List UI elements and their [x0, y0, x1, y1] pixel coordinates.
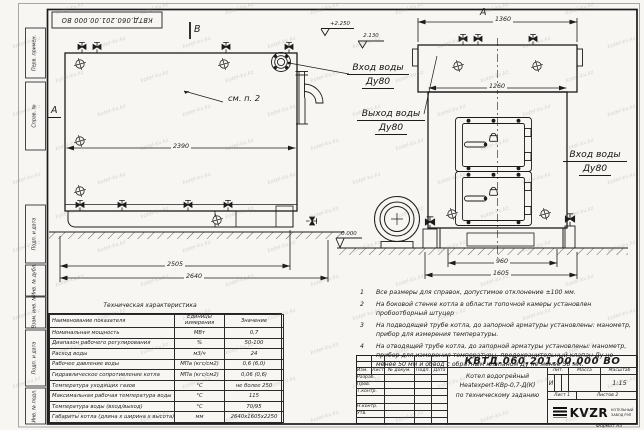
furnace-door-lower [456, 172, 532, 226]
blower-fan [375, 197, 420, 249]
list-item: 1Все размеры для справок, допустимое отк… [360, 289, 634, 298]
sheet-number: Лист 1 [548, 392, 577, 400]
section-marker-a-side: А [48, 106, 61, 118]
elev-2250: +2.250 [330, 22, 350, 27]
table-row: Рабочее давление водыМПа (кгс/см2)0,6 (6… [50, 359, 284, 370]
table-row: Гидравлическое сопротивление котлаМПа (к… [50, 370, 284, 381]
water-outlet-label: Выход воды Ду80 [357, 108, 425, 135]
lit-label: Лит. [548, 368, 569, 375]
tech-header-name: Наименование показателя [50, 315, 175, 328]
elev-2130: 2.130 [363, 34, 378, 39]
dim-1605: 1605 [491, 271, 511, 277]
tb-row-nkontr: Н.контр. [357, 404, 385, 411]
section-marker-b: B [194, 25, 201, 35]
frame-col-label-sprav-no: Справ. № [33, 104, 38, 127]
top-inverted-stamp: КВТД.060.201.00.000 ВО [52, 12, 162, 28]
tech-table-title: Техническая характеристика [103, 303, 196, 309]
tb-row-prov: Пров. [357, 382, 385, 389]
water-inlet-right-label: Вход воды Ду80 [563, 149, 627, 176]
scale-label: Масштаб [601, 368, 638, 375]
kvzr-logo-icon [553, 407, 567, 418]
table-row: Номинальная мощностьМВт0,7 [50, 328, 284, 339]
furnace-door-upper [456, 118, 532, 172]
table-row: Расход водым3/ч24 [50, 349, 284, 360]
kvzr-logo-caption: КОТЕЛЬНЫЙ ЗАВОД РЭП [611, 408, 633, 417]
table-row: Температура воды (вход/выход)°С70/95 [50, 401, 284, 412]
table-row: Температура уходящих газов°Сне более 250 [50, 380, 284, 391]
water-inlet-label: Вход воды Ду80 [347, 62, 409, 89]
tb-col-list: Лист [372, 368, 385, 375]
table-row: Габариты котла (длина х ширина х высота)… [50, 412, 284, 423]
tb-col-izm: Изм. [357, 368, 372, 375]
dim-2640: 2640 [184, 274, 204, 280]
elev-0000: 0.000 [341, 232, 356, 237]
frame-col-label-vzam-inv: Взам. инв. № [33, 296, 38, 329]
list-item: 2На боковой стенке котла в области топоч… [360, 301, 634, 319]
scale-value: 1:15 [601, 375, 638, 392]
inlet-flange [272, 53, 291, 72]
drawing-sheet: КВТД.060.201.00.000 ВО Перв. примен. Спр… [0, 0, 644, 430]
tech-header-value: Значение [225, 315, 284, 328]
frame-col-label-inv-dubl: Инв. № дубл. [33, 264, 38, 297]
table-row: Максимальная рабочая температура воды°С1… [50, 391, 284, 402]
see-note-label: см. п. 2 [228, 94, 260, 102]
frame-col-label-podp-data-2: Подп. и дата [33, 342, 38, 375]
dim-1360: 1360 [493, 17, 513, 23]
format-note: Формат А3 [596, 425, 622, 430]
product-name: Котел водогрейный Heatexpert-КВр-0,7-Д(К… [448, 368, 548, 425]
outlet-pipe [296, 72, 324, 125]
view-marker-a-front: А [480, 8, 487, 18]
table-row: Диапазон рабочего регулирования%50-100 [50, 338, 284, 349]
tb-row-tkontr: Т.контр. [357, 389, 385, 396]
frame-col-label-inv-podl: Инв. № подл. [33, 389, 38, 422]
tb-col-data: Дата [432, 368, 448, 375]
doc-number: КВТД.060.201.00.000 ВО [448, 356, 638, 368]
dim-2505: 2505 [165, 262, 185, 268]
frame-col-label-perv-primen: Перв. примен. [33, 35, 38, 71]
lit-value: И [548, 375, 555, 392]
kvzr-logo-text: KVZR [570, 406, 609, 420]
dim-960: 960 [494, 259, 510, 265]
dim-1260: 1260 [487, 84, 507, 90]
mass-value [569, 375, 601, 392]
tech-table: Наименование показателя Единицы измерени… [48, 313, 282, 424]
mass-label: Масса [569, 368, 601, 375]
frame-col-label-podp-data-1: Подп. и дата [33, 218, 38, 251]
tb-row-razrab: Разраб. [357, 375, 385, 382]
list-item: 3На подводящей трубе котла, до запорной … [360, 322, 634, 340]
side-view [49, 42, 344, 282]
sheets-total: Листов 2 [577, 392, 638, 400]
tech-header-units: Единицы измерения [175, 315, 225, 328]
company-logo: KVZR КОТЕЛЬНЫЙ ЗАВОД РЭП [548, 400, 638, 425]
tb-col-podp: Подп. [415, 368, 432, 375]
tb-col-doc: № докум. [385, 368, 415, 375]
tb-row-utv: Утв. [357, 411, 385, 418]
dim-2390: 2390 [171, 144, 191, 150]
title-block: Изм. Лист № докум. Подп. Дата Разраб. Пр… [356, 355, 637, 424]
